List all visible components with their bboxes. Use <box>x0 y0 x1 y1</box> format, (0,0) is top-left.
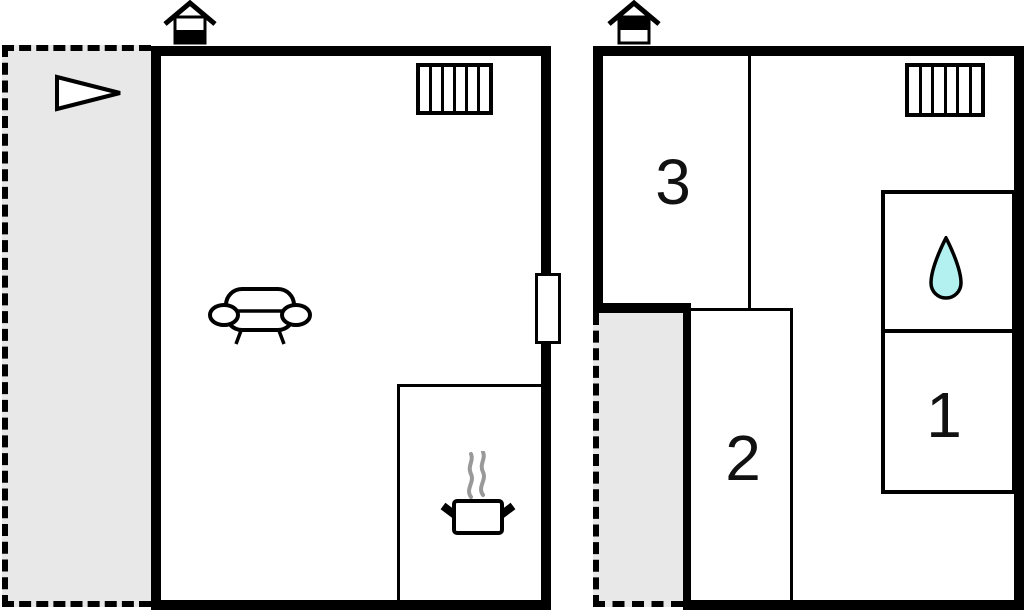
floor-plan: 3 2 1 <box>0 0 1024 610</box>
house-entrance-ground-icon <box>162 0 218 46</box>
house-entrance-first-icon <box>606 0 662 46</box>
kitchen-partition-wall-vertical <box>397 384 400 600</box>
terrace-ground-floor <box>2 45 151 607</box>
terrace-first-floor <box>593 313 683 607</box>
room2-top-wall <box>691 308 793 311</box>
ff-wall-left <box>593 46 603 313</box>
ff-wall-bottom <box>683 600 1024 610</box>
room2-right-wall <box>790 308 793 600</box>
radiator-icon <box>905 63 985 117</box>
bathroom-bedroom-divider-wall <box>881 329 1016 333</box>
cooking-pot-icon <box>438 451 518 537</box>
ff-wall-top <box>593 46 1024 56</box>
room3-divider-wall <box>748 56 751 308</box>
direction-arrow-icon <box>54 74 124 112</box>
room2-left-wall <box>683 303 691 610</box>
room3-bottom-wall <box>593 303 691 313</box>
window-door-icon <box>535 273 561 344</box>
radiator-icon <box>416 63 493 115</box>
water-drop-icon <box>929 236 963 303</box>
sofa-icon <box>208 284 312 346</box>
kitchen-partition-wall-horizontal <box>397 384 541 387</box>
room-label-2: 2 <box>718 425 768 491</box>
room-label-1: 1 <box>919 382 969 448</box>
room-label-3: 3 <box>648 149 698 215</box>
